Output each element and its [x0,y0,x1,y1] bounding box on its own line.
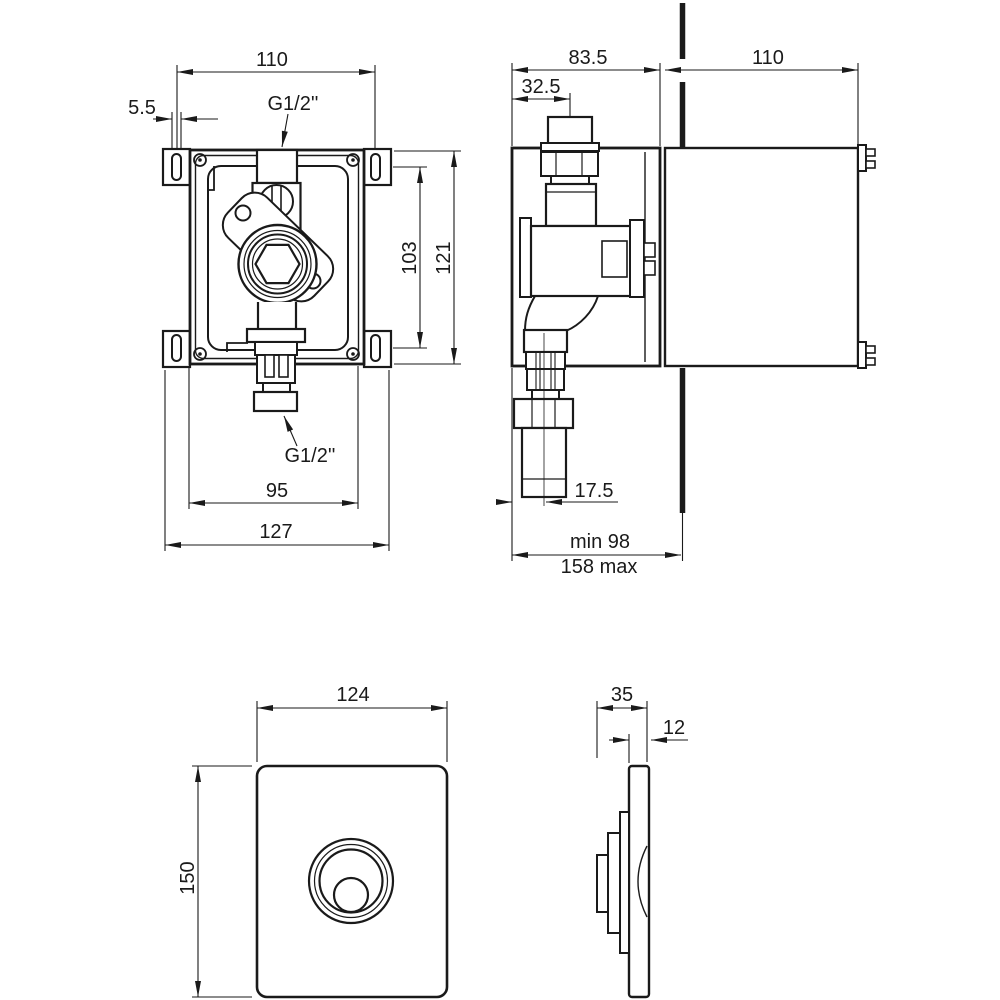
cover-clip-nub [866,358,875,365]
slot-hole-top-right [371,154,380,180]
outlet-body-front [255,342,297,355]
corner-screw-dot [198,352,202,356]
button-step-middle [608,833,620,933]
flange-hole-upper [236,206,251,221]
connector-nub [644,243,655,257]
dim-110-side-label: 110 [752,47,784,69]
slot-hole-bottom-right [371,335,380,361]
outlet-connector [602,241,627,277]
top-connection-label: G1/2'' [268,93,319,115]
drawing-page: 110 5.5 G1/2'' 103 121 G1/2'' 95 127 [0,0,1000,1000]
push-plate [257,766,447,997]
valve-left-flange [520,218,531,297]
dim-5-5-label: 5.5 [128,97,156,119]
cover-clip-nub [866,149,875,156]
dim-12-label: 12 [663,717,685,739]
outlet-pipe-front [254,392,297,411]
valve-neck-side [551,176,589,184]
inlet-hex-nut [541,152,598,176]
dim-17-5-label: 17.5 [575,480,614,502]
slot-hole-bottom-left [172,335,181,361]
corner-screw-dot [351,158,355,162]
inlet-flange-side [541,143,599,151]
union-hex-nut [514,399,573,428]
dim-121-label: 121 [433,241,455,274]
cover-clip-top [858,145,866,171]
inlet-pipe-front [257,150,297,183]
push-plate-front-view: 124 150 [177,684,447,997]
cover-clip-bottom [858,342,866,368]
box-side-view: 83.5 110 32.5 17.5 min 98 158 max [497,3,875,578]
threaded-section-1 [526,352,565,369]
castellation-slot [265,355,274,377]
valve-upper-body-side [546,184,596,226]
outlet-neck-front [263,383,290,392]
slot-hole-top-left [172,154,181,180]
corner-screw-dot [198,158,202,162]
outlet-flange-front [247,329,305,342]
leader-top-connection [282,114,288,147]
dim-103-label: 103 [399,241,421,274]
corner-screw-dot [351,352,355,356]
dim-127-label: 127 [259,521,292,543]
dim-110-label: 110 [256,49,288,71]
dim-124-label: 124 [336,684,369,706]
cover-clip-nub [866,346,875,353]
valve-right-flange [630,220,644,297]
plate-side-profile [629,766,649,997]
dim-32-5-label: 32.5 [522,76,561,98]
lower-neck-side [532,390,559,399]
protective-cover [665,148,858,366]
box-front-view: 110 5.5 G1/2'' 103 121 G1/2'' 95 127 [128,49,461,551]
push-plate-side-view: 35 12 [597,684,688,997]
dim-83-5-label: 83.5 [569,47,608,69]
castellation-slot [279,355,288,377]
bottom-connection-label: G1/2'' [285,445,336,467]
outlet-pipe-side [524,330,567,352]
button-step-front [597,855,608,912]
connector-nub [644,261,655,275]
threaded-section-2 [527,369,564,390]
dim-150-label: 150 [177,861,199,894]
dim-95-label: 95 [266,480,288,502]
dim-158-max-label: 158 max [561,556,638,578]
dim-35-label: 35 [611,684,633,706]
leader-bottom-connection [284,416,297,446]
outlet-castellation [257,355,295,383]
dim-min-98-label: min 98 [570,531,630,553]
technical-drawing: 110 5.5 G1/2'' 103 121 G1/2'' 95 127 [0,0,1000,1000]
cover-clip-nub [866,161,875,168]
pipe-mask [259,302,295,331]
button-step-outer [620,812,629,953]
valve-ring-outer [239,225,317,303]
